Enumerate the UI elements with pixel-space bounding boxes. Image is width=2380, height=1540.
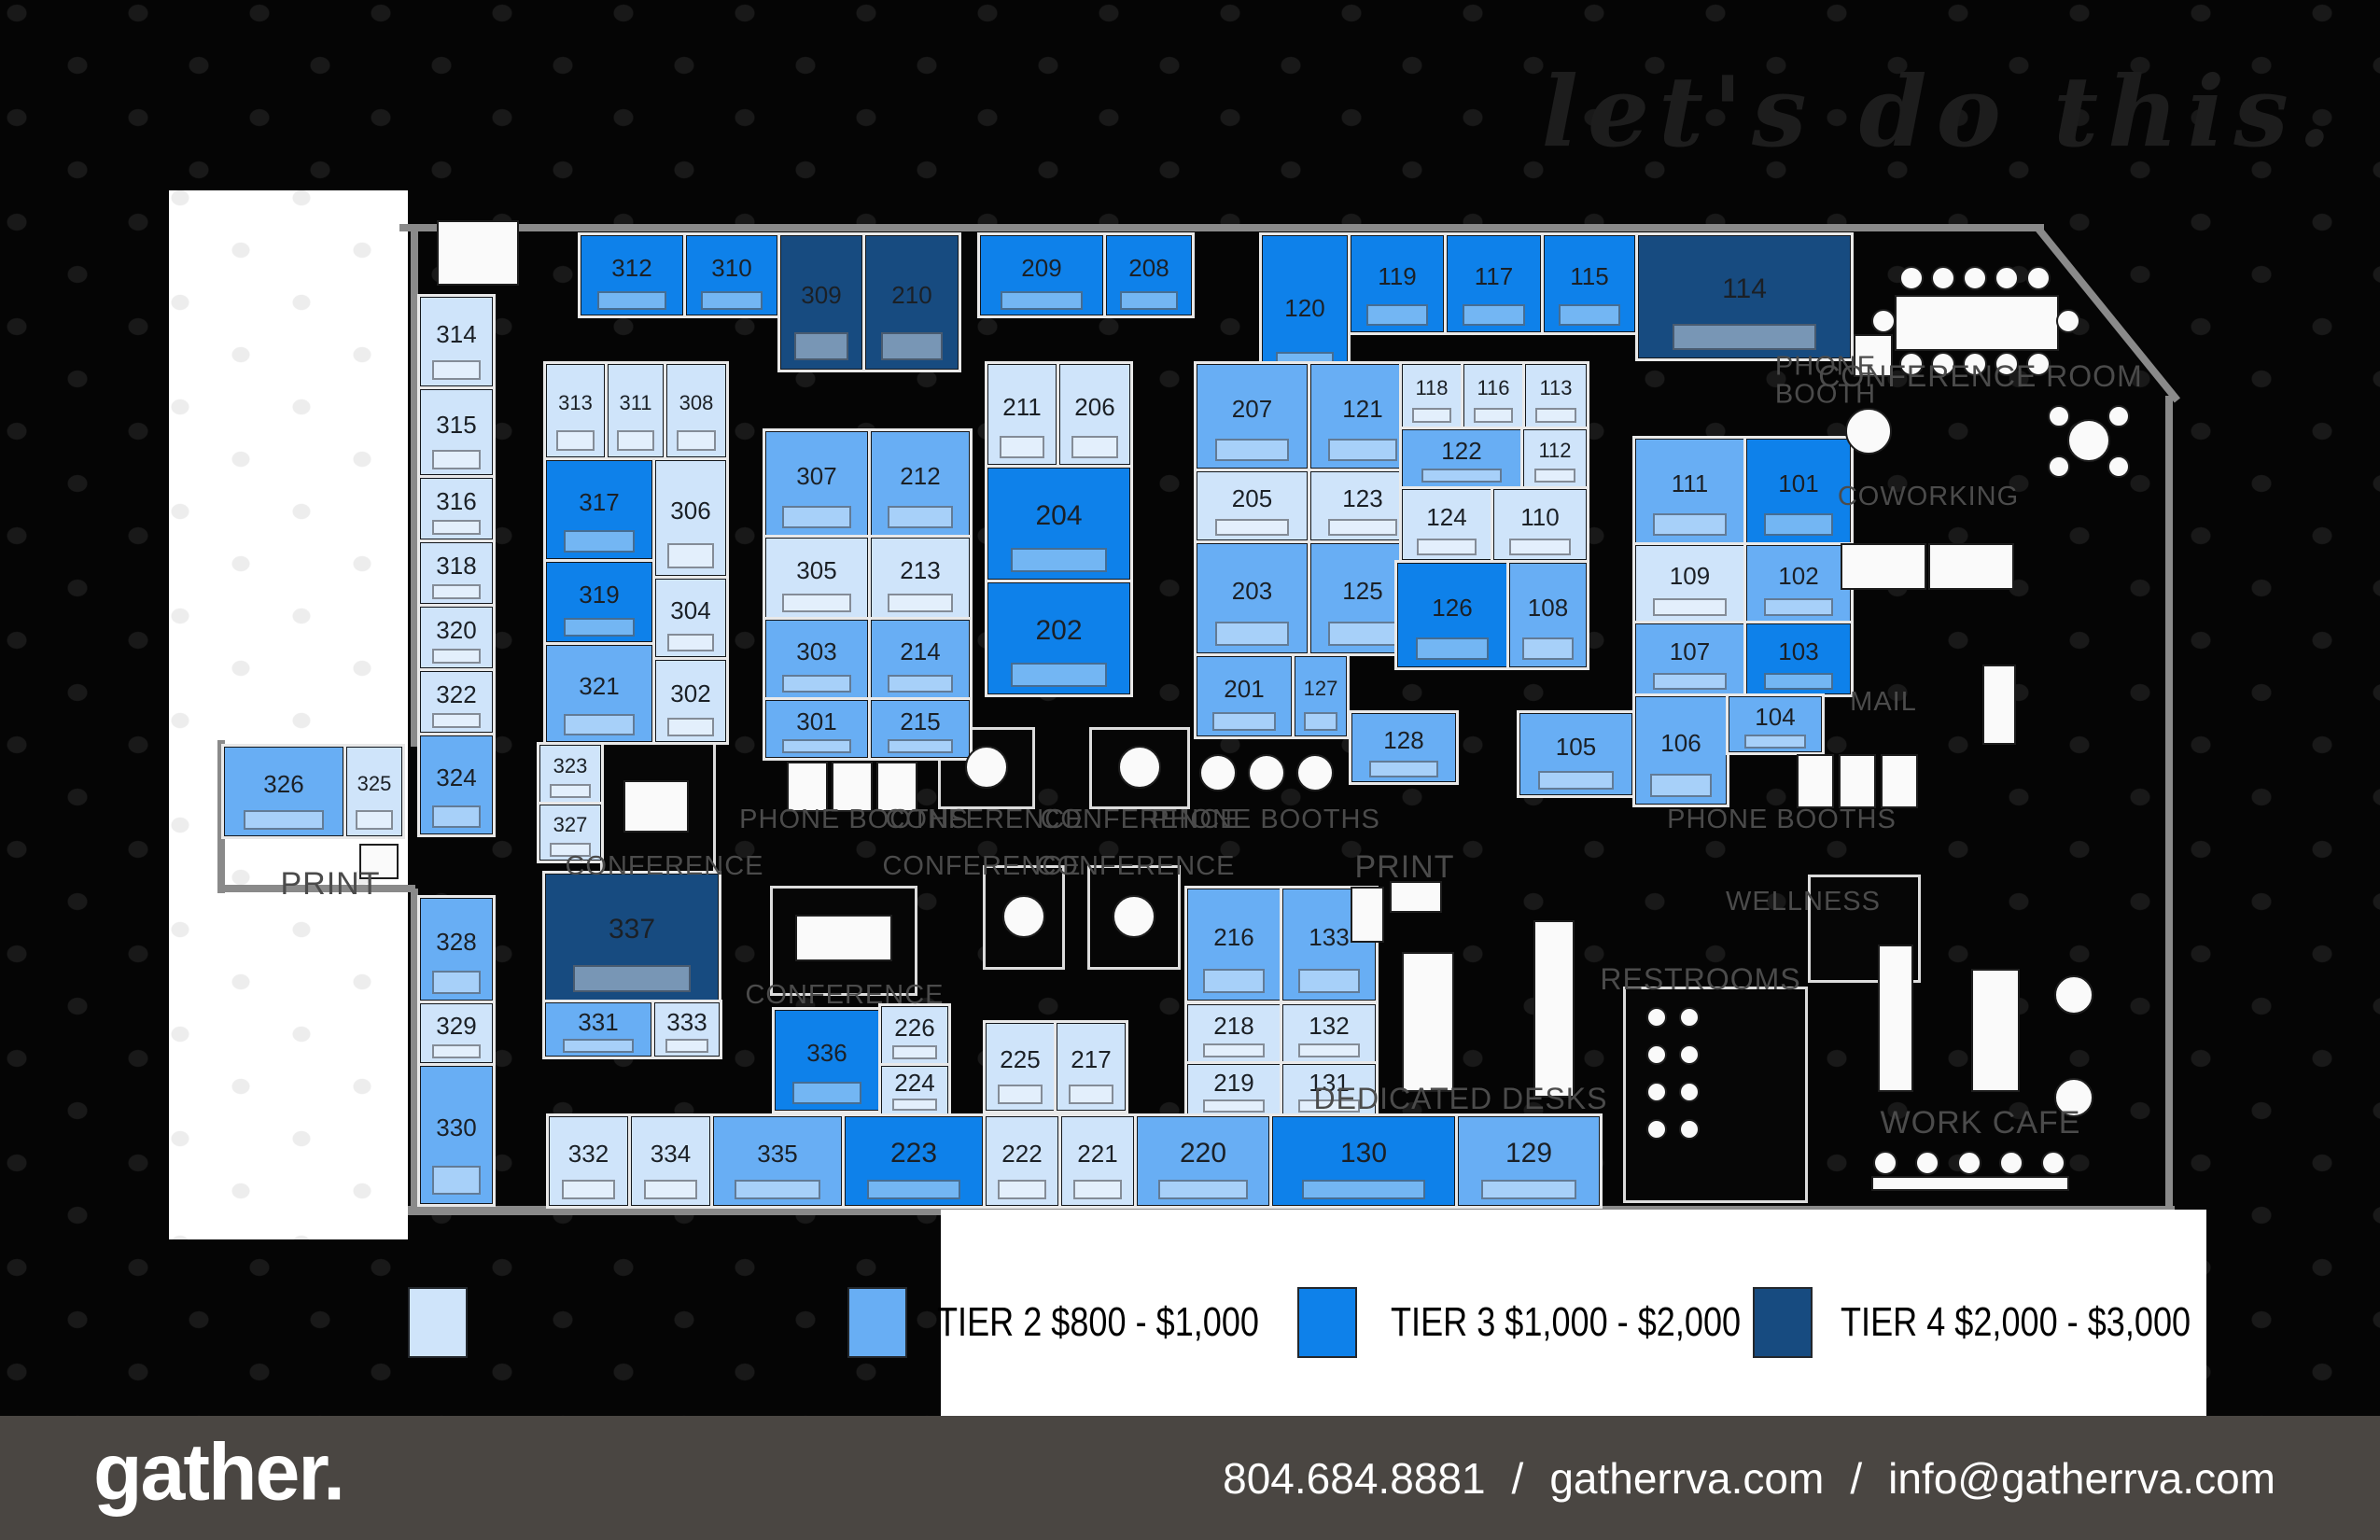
room-307: 307 <box>765 431 868 536</box>
room-108: 108 <box>1509 563 1587 667</box>
email: info@gatherrva.com <box>1888 1454 2275 1503</box>
furniture <box>2026 266 2051 290</box>
footer: gather. 804.684.8881/gatherrva.com/info@… <box>0 1416 2380 1540</box>
room-110: 110 <box>1493 489 1587 560</box>
room-324: 324 <box>420 735 493 834</box>
room-111: 111 <box>1635 439 1744 543</box>
furniture <box>2054 975 2093 1015</box>
room-203: 203 <box>1197 543 1308 653</box>
furniture <box>2048 405 2070 427</box>
area-label: WELLNESS <box>1726 888 1881 916</box>
furniture <box>1915 1151 1939 1175</box>
area-label: WORK CAFE <box>1881 1107 2081 1141</box>
room-105: 105 <box>1519 713 1632 795</box>
room-103: 103 <box>1746 623 1851 694</box>
room-335: 335 <box>713 1116 842 1206</box>
separator: / <box>1512 1454 1524 1503</box>
area-label: MAIL <box>1850 688 1917 716</box>
room-107: 107 <box>1635 623 1744 694</box>
furniture <box>2107 455 2130 478</box>
room-126: 126 <box>1397 563 1507 667</box>
room-334: 334 <box>631 1116 710 1206</box>
furniture <box>1797 754 1834 808</box>
furniture <box>1646 1119 1667 1140</box>
contact-info: 804.684.8881/gatherrva.com/info@gatherrv… <box>1223 1453 2275 1504</box>
room-101: 101 <box>1746 439 1851 543</box>
furniture <box>1351 887 1384 943</box>
furniture <box>1873 1151 1897 1175</box>
room-332: 332 <box>549 1116 628 1206</box>
legend-swatch-tier-1 <box>408 1287 468 1358</box>
room-212: 212 <box>871 431 970 536</box>
room-302: 302 <box>655 660 726 742</box>
room-218: 218 <box>1187 1004 1281 1062</box>
room-211: 211 <box>987 364 1057 465</box>
furniture <box>1878 945 1913 1092</box>
furniture <box>1679 1044 1700 1065</box>
room-115: 115 <box>1544 235 1635 332</box>
furniture <box>1679 1082 1700 1102</box>
room-304: 304 <box>655 579 726 657</box>
room-202: 202 <box>987 582 1130 694</box>
legend-label-tier-4: TIER 4 $2,000 - $3,000 <box>1841 1287 2191 1358</box>
room-215: 215 <box>871 700 970 758</box>
furniture <box>2067 419 2110 462</box>
furniture <box>1248 754 1285 791</box>
room-201: 201 <box>1197 656 1292 736</box>
room-317: 317 <box>546 460 652 559</box>
area-label: CONFERENCE <box>1036 852 1235 880</box>
furniture <box>1881 754 1918 808</box>
furniture <box>1841 543 1926 590</box>
furniture <box>437 220 519 286</box>
room-303: 303 <box>765 620 868 698</box>
area-label: PRINT <box>1355 851 1455 885</box>
room-331: 331 <box>545 1002 651 1057</box>
room-336: 336 <box>775 1010 879 1111</box>
legend-swatch-tier-4 <box>1753 1287 1813 1358</box>
furniture <box>1871 309 1896 333</box>
furniture <box>1982 665 2016 745</box>
room-217: 217 <box>1057 1023 1126 1111</box>
furniture <box>1995 266 2019 290</box>
room-318: 318 <box>420 542 493 604</box>
room-123: 123 <box>1310 471 1415 540</box>
furniture <box>1971 969 2020 1092</box>
furniture <box>965 746 1008 789</box>
room-308: 308 <box>666 364 726 457</box>
furniture <box>1199 754 1237 791</box>
room-319: 319 <box>546 562 652 642</box>
room-326: 326 <box>224 747 343 836</box>
area-label: CONFERENCE <box>565 852 763 880</box>
room-208: 208 <box>1106 235 1192 315</box>
room-313: 313 <box>546 364 605 457</box>
room-132: 132 <box>1282 1004 1376 1062</box>
area-label: RESTROOMS <box>1600 964 1800 996</box>
legend-label-tier-2: TIER 2 $800 - $1,000 <box>937 1287 1259 1358</box>
area-label: DEDICATED DESKS <box>1314 1084 1608 1115</box>
room-122: 122 <box>1402 429 1521 487</box>
room-226: 226 <box>881 1006 948 1064</box>
room-221: 221 <box>1061 1116 1134 1206</box>
legend-swatch-tier-3 <box>1297 1287 1357 1358</box>
room-130: 130 <box>1272 1116 1455 1206</box>
furniture <box>1957 1151 1981 1175</box>
room-119: 119 <box>1351 235 1444 332</box>
furniture <box>795 915 892 961</box>
room-114: 114 <box>1638 235 1851 358</box>
separator: / <box>1850 1454 1862 1503</box>
area-label: CONFERENCE <box>745 981 944 1009</box>
furniture <box>1999 1151 2023 1175</box>
furniture <box>1931 266 1955 290</box>
furniture <box>1899 266 1924 290</box>
furniture <box>2048 455 2070 478</box>
room-129: 129 <box>1458 1116 1600 1206</box>
room-323: 323 <box>539 745 601 803</box>
room-309: 309 <box>780 235 862 370</box>
furniture <box>1928 543 2014 590</box>
room-305: 305 <box>765 538 868 618</box>
furniture <box>1646 1007 1667 1028</box>
room-311: 311 <box>608 364 664 457</box>
room-219: 219 <box>1187 1064 1281 1116</box>
room-223: 223 <box>845 1116 983 1206</box>
room-312: 312 <box>581 235 683 315</box>
room-209: 209 <box>980 235 1103 315</box>
wall <box>411 224 418 747</box>
furniture <box>1679 1007 1700 1028</box>
room-315: 315 <box>420 389 493 475</box>
room-310: 310 <box>686 235 777 315</box>
brand-logo: gather. <box>93 1426 343 1519</box>
furniture <box>1871 1176 2069 1191</box>
area-label: COWORKING <box>1838 483 2019 511</box>
room-207: 207 <box>1197 364 1308 469</box>
room-321: 321 <box>546 645 652 742</box>
room-206: 206 <box>1059 364 1130 465</box>
phone-number: 804.684.8881 <box>1223 1454 1485 1503</box>
room-109: 109 <box>1635 545 1744 622</box>
furniture <box>2056 309 2080 333</box>
room-127: 127 <box>1295 656 1347 736</box>
room-330: 330 <box>420 1066 493 1204</box>
room-113: 113 <box>1525 364 1587 427</box>
area-label: PHONE BOOTHS <box>1667 805 1897 833</box>
website: gatherrva.com <box>1549 1454 1824 1503</box>
room-128: 128 <box>1351 713 1456 782</box>
room-106: 106 <box>1635 696 1727 805</box>
room-337: 337 <box>545 874 719 1001</box>
room-118: 118 <box>1402 364 1462 427</box>
room-220: 220 <box>1137 1116 1269 1206</box>
wall <box>399 224 2044 231</box>
room-213: 213 <box>871 538 970 618</box>
furniture <box>1895 295 2059 351</box>
furniture <box>1002 895 1045 938</box>
furniture <box>623 780 689 833</box>
room-329: 329 <box>420 1003 493 1063</box>
room-222: 222 <box>986 1116 1058 1206</box>
furniture <box>1845 408 1892 455</box>
room-204: 204 <box>987 468 1130 580</box>
room-205: 205 <box>1197 471 1308 540</box>
legend-label-tier-3: TIER 3 $1,000 - $2,000 <box>1391 1287 1741 1358</box>
room-224: 224 <box>881 1066 948 1114</box>
room-322: 322 <box>420 671 493 733</box>
furniture <box>1646 1082 1667 1102</box>
room-214: 214 <box>871 620 970 698</box>
room-112: 112 <box>1523 429 1587 487</box>
furniture <box>1296 754 1334 791</box>
furniture <box>1402 952 1454 1092</box>
furniture <box>1646 1044 1667 1065</box>
room-314: 314 <box>420 297 493 386</box>
room-333: 333 <box>654 1002 720 1057</box>
area-label: PHONE BOOTHS <box>1151 805 1380 833</box>
wall <box>2165 396 2173 1213</box>
room-306: 306 <box>655 460 726 576</box>
wall <box>411 889 418 1213</box>
furniture <box>1390 881 1442 913</box>
room-210: 210 <box>865 235 959 370</box>
furniture <box>2041 1151 2065 1175</box>
room-117: 117 <box>1447 235 1541 332</box>
furniture <box>2107 405 2130 427</box>
furniture <box>1839 754 1876 808</box>
room-102: 102 <box>1746 545 1851 622</box>
legend-swatch-tier-2 <box>847 1287 907 1358</box>
furniture <box>1963 266 1987 290</box>
room-325: 325 <box>346 747 402 836</box>
furniture <box>1679 1119 1700 1140</box>
room-320: 320 <box>420 607 493 668</box>
room-116: 116 <box>1463 364 1523 427</box>
room-216: 216 <box>1187 889 1281 1001</box>
room-316: 316 <box>420 478 493 539</box>
area-label: CONFERENCE ROOM <box>1818 361 2142 393</box>
area-label: PRINT <box>281 868 381 902</box>
room-104: 104 <box>1729 696 1822 752</box>
room-225: 225 <box>986 1023 1055 1111</box>
furniture <box>1533 920 1575 1098</box>
room-124: 124 <box>1402 489 1491 560</box>
furniture <box>1113 895 1155 938</box>
room-121: 121 <box>1310 364 1415 469</box>
furniture <box>1118 746 1161 789</box>
room-301: 301 <box>765 700 868 758</box>
room-328: 328 <box>420 898 493 1001</box>
